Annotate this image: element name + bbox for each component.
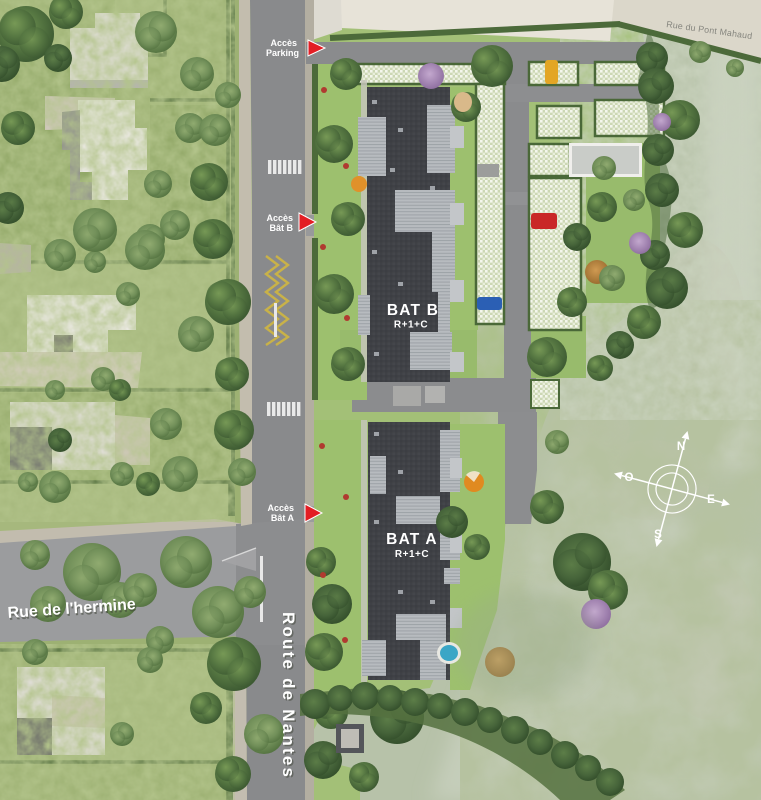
svg-text:Route de Nantes: Route de Nantes xyxy=(279,612,298,779)
svg-text:BAT A: BAT A xyxy=(386,531,438,548)
svg-text:BAT B: BAT B xyxy=(387,302,439,319)
svg-text:Accès: Accès xyxy=(266,213,293,223)
svg-text:Accès: Accès xyxy=(270,38,297,48)
svg-text:N: N xyxy=(677,441,685,453)
svg-text:R+1+C: R+1+C xyxy=(394,320,428,331)
svg-text:R+1+C: R+1+C xyxy=(395,549,429,560)
svg-text:E: E xyxy=(707,494,715,506)
svg-text:S: S xyxy=(654,529,662,541)
svg-text:Bât A: Bât A xyxy=(271,513,295,523)
svg-text:Bât B: Bât B xyxy=(269,223,293,233)
svg-text:Accès: Accès xyxy=(267,503,294,513)
svg-text:O: O xyxy=(625,472,634,484)
svg-text:Parking: Parking xyxy=(266,48,299,58)
